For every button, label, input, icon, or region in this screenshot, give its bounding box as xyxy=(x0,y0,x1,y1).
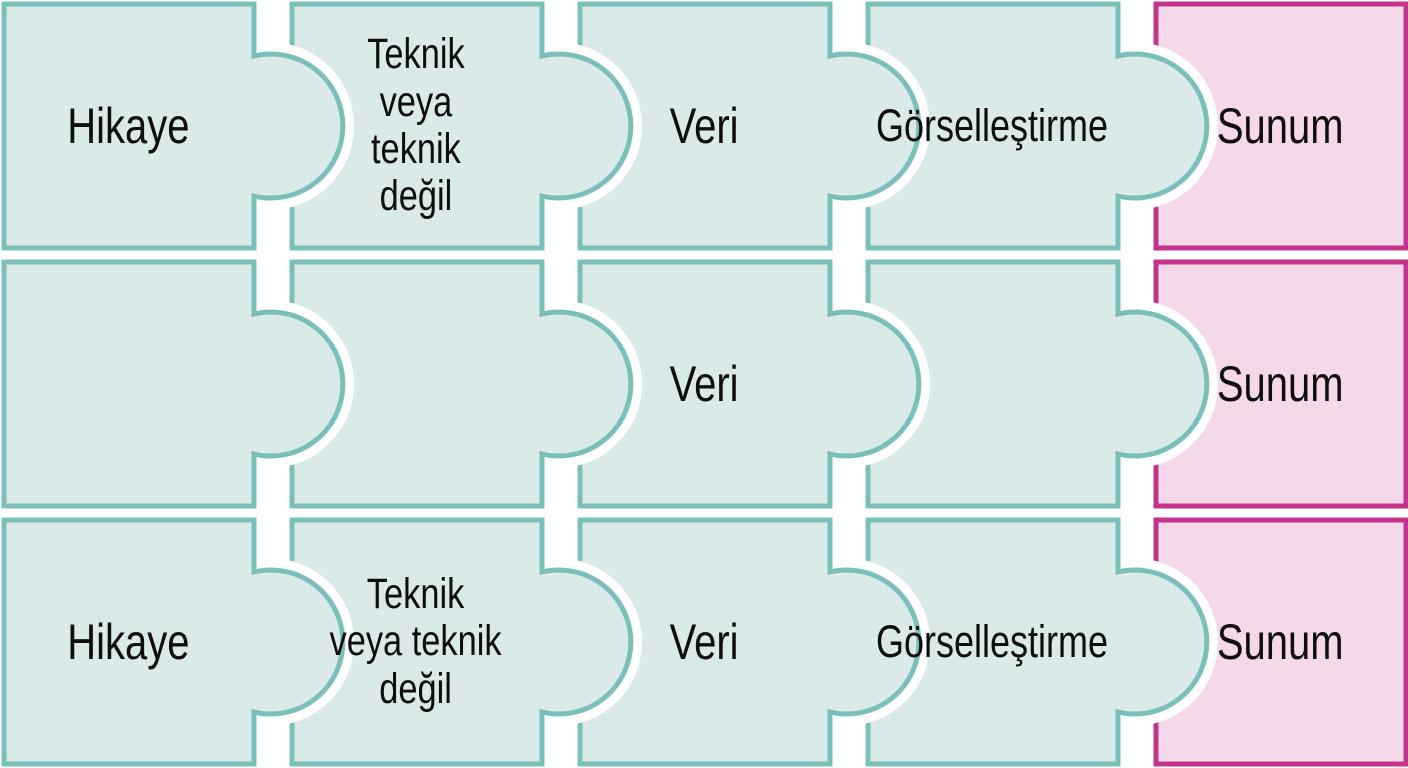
puzzle-diagram: Hikaye Teknik veya teknik değil Veri Gör… xyxy=(0,0,1408,768)
puzzle-pieces-canvas xyxy=(0,0,1408,768)
